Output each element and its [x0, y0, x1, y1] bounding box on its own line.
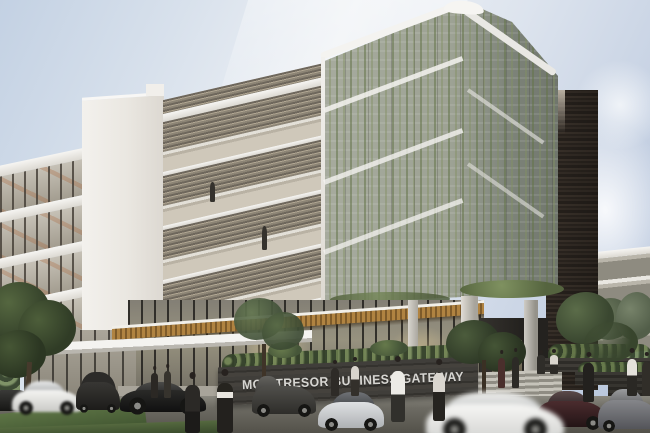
person-head	[333, 360, 337, 364]
person-body	[217, 383, 233, 433]
pedestrian-woman	[432, 359, 446, 421]
person-body	[185, 385, 200, 433]
person-body	[331, 368, 340, 396]
person-body	[627, 359, 638, 396]
car-white-moving	[12, 381, 82, 414]
pedestrian-sitting	[536, 350, 546, 374]
person-head	[514, 348, 518, 352]
person-head	[436, 359, 442, 365]
tree-trunk	[482, 360, 486, 394]
pedestrian-on-steps	[497, 350, 506, 388]
car-wheel	[129, 397, 146, 414]
car-silver-hatchback	[318, 392, 384, 430]
person-body	[537, 355, 546, 374]
pedestrian-man-white-shirt	[390, 356, 406, 422]
pedestrian-on-steps	[511, 348, 520, 388]
person-body	[391, 371, 405, 422]
car-dark-van	[76, 372, 120, 412]
pedestrian	[150, 366, 159, 398]
car-wheel	[364, 418, 377, 431]
person-head	[586, 352, 591, 357]
person-body	[550, 355, 559, 375]
person-body	[433, 373, 445, 421]
person-head	[189, 372, 196, 379]
pedestrian	[626, 348, 638, 396]
balcony-figure	[210, 182, 215, 202]
person-body	[498, 358, 506, 388]
car-wheel	[603, 420, 615, 432]
pedestrian	[641, 352, 650, 396]
person-head	[153, 366, 157, 370]
person-body	[512, 357, 520, 388]
person-head	[630, 348, 635, 353]
person-head	[539, 350, 543, 354]
pedestrian	[350, 357, 360, 396]
person-head	[552, 349, 556, 353]
person-body	[583, 363, 594, 402]
car-wheel	[107, 404, 116, 413]
car-wheel	[19, 401, 33, 415]
pedestrian-businessman-right	[582, 352, 595, 402]
car-wheel	[298, 404, 311, 417]
person-head	[166, 364, 170, 368]
pedestrian	[163, 364, 172, 398]
person-head	[500, 350, 504, 354]
person-body	[351, 366, 360, 396]
architectural-rendering: MON TRESOR BUSINESS GATEWAY	[0, 0, 650, 433]
car-wheel	[60, 401, 74, 415]
pedestrian-sitting	[549, 349, 559, 374]
person-body	[642, 362, 650, 396]
person-body	[164, 371, 172, 398]
person-head	[395, 356, 401, 362]
person-head	[221, 369, 228, 376]
car-grey-pickup	[252, 376, 316, 416]
person-head	[644, 352, 648, 356]
car-wheel	[325, 418, 338, 431]
pedestrian-businessman	[216, 369, 234, 433]
pedestrian-businessman	[184, 372, 201, 433]
person-body	[151, 373, 159, 398]
pedestrian	[330, 360, 340, 396]
person-head	[353, 357, 357, 361]
balcony-figure	[262, 226, 267, 250]
core-parapet-step	[146, 84, 164, 96]
car-wheel	[80, 404, 89, 413]
car-wheel	[257, 404, 270, 417]
car-white-suv-foreground	[426, 392, 564, 433]
